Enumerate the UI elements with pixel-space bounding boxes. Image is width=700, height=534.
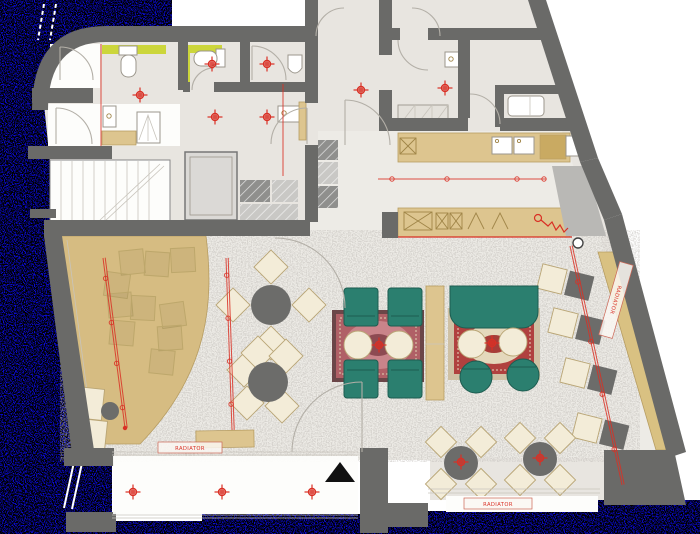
- floor-plan-scan: RADIATOR RADIATOR RADIATOR: [0, 0, 700, 534]
- round-side-table: [385, 331, 413, 359]
- urinal: [288, 55, 302, 73]
- counter-dark-block: [540, 135, 566, 159]
- round-lounge-chair: [460, 361, 492, 393]
- bath-cabinet: [102, 131, 136, 145]
- elevator: [185, 152, 237, 220]
- armchair-teal: [344, 288, 378, 326]
- radiator-label-left: RADIATOR: [158, 442, 222, 453]
- lounge-area: [332, 286, 540, 400]
- floor-plan-svg: RADIATOR RADIATOR RADIATOR: [0, 0, 700, 534]
- terrace-floor: [113, 456, 358, 514]
- lounge-console-table: [426, 286, 444, 400]
- column-marker: [573, 238, 583, 248]
- radiator-text-left: RADIATOR: [175, 446, 205, 452]
- armchair-teal: [388, 288, 422, 326]
- shower: [137, 112, 160, 143]
- round-side-table: [344, 331, 372, 359]
- appliance: [508, 96, 544, 116]
- lounge-sofa: [450, 286, 538, 328]
- armchair-teal: [344, 360, 378, 398]
- radiator-text-bottom: RADIATOR: [483, 502, 513, 508]
- entrance-pillar: [360, 448, 388, 533]
- toilet: [119, 46, 137, 77]
- radiator-label-bottom: RADIATOR: [464, 498, 532, 509]
- kitchen-sink-left: [492, 137, 512, 154]
- kitchen-sink-right: [514, 137, 534, 154]
- round-side-table: [458, 330, 486, 358]
- sink: [278, 106, 300, 122]
- sink: [103, 106, 116, 127]
- round-lounge-chair: [507, 359, 539, 391]
- armchair-teal: [388, 360, 422, 398]
- staircase: [50, 160, 170, 222]
- round-side-table: [499, 328, 527, 356]
- small-round-table: [101, 402, 119, 420]
